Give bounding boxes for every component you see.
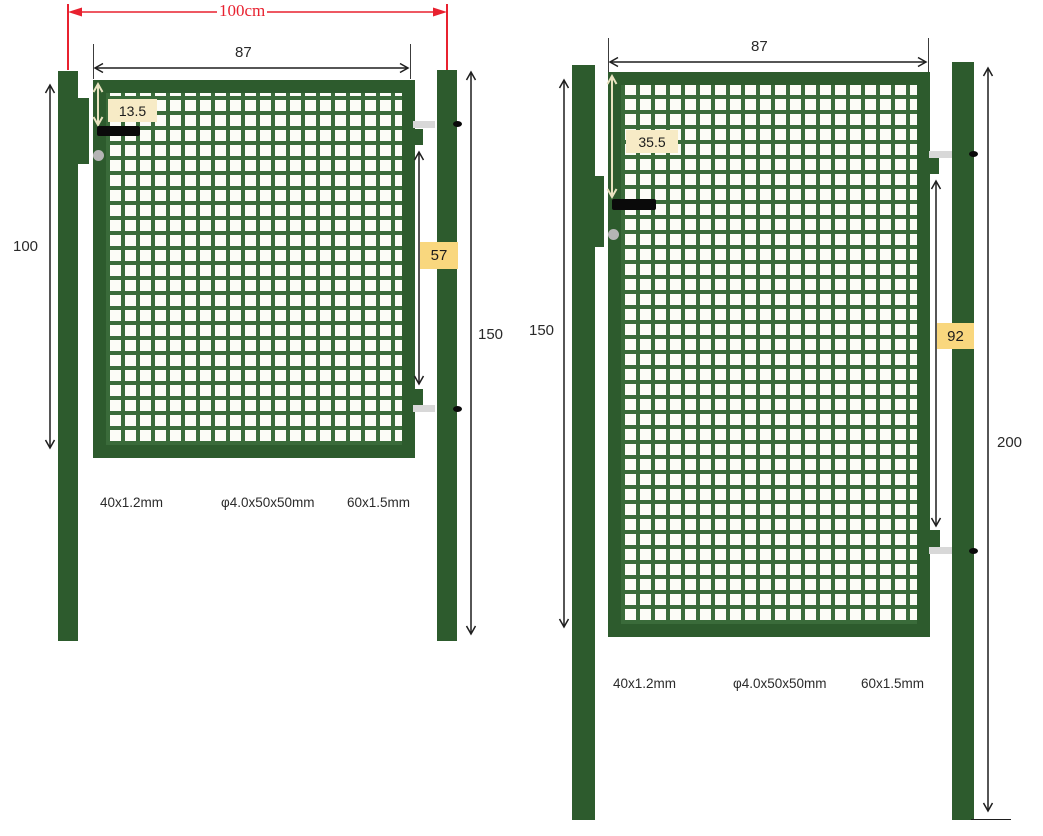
gate1-frame [93,80,415,458]
gate2-latch-plate [595,176,604,247]
gate2-spec-post: 60x1.5mm [861,676,924,691]
gate1-right-post [437,70,457,641]
gate1-overall-width-label: 100cm [217,2,267,21]
gate1-spec-post: 60x1.5mm [347,495,410,510]
gate2-frame-width-arrow [608,56,928,68]
gate1-hinge-spacing-label: 57 [431,247,448,264]
gate1-bottom-hinge-bar [413,405,435,412]
gate2-frame-width-label: 87 [751,38,768,55]
gate1-handle-offset-tag: 13.5 [108,99,157,122]
gate2-right-post [952,62,974,820]
gate2-frame [608,72,930,637]
gate1-gate-height-arrow [44,83,56,450]
gate1-bottom-hinge-bolt [453,406,462,412]
gate2-hinge-spacing-arrow [930,179,942,528]
gate1-frame-width-arrow [93,62,410,74]
gate2-gate-height-arrow [558,78,570,629]
gate1-wire-mesh [106,93,402,445]
gate2-bottom-hinge-bolt [969,548,978,554]
gate2-post-height-label: 200 [997,434,1022,451]
gate1-top-hinge-tab [412,129,423,145]
gate2-bottom-hinge-bar [929,547,952,554]
gate2-top-hinge-bolt [969,151,978,157]
gate2-spec-frame: 40x1.2mm [613,676,676,691]
gate2-left-post [572,65,595,820]
gate1-top-hinge-bolt [453,121,462,127]
gate1-spec-frame: 40x1.2mm [100,495,163,510]
gate1-left-post [58,71,78,641]
gate1-handle-offset-arrow [92,82,104,127]
gate2-hinge-spacing-label: 92 [947,328,964,345]
gate2-spec-mesh: φ4.0x50x50mm [733,676,827,691]
gate1-handle-offset-label: 13.5 [119,103,146,119]
gate2-handle-offset-arrow [606,74,618,199]
gate2-top-hinge-bar [929,151,952,158]
gate2-87-extension-right [928,38,929,73]
gate1-lock-cylinder [93,150,104,161]
gate1-post-height-label: 150 [478,326,503,343]
gate2-top-hinge-tab [928,158,939,174]
gate2-bottom-hinge-tab [928,530,940,547]
gate2-wire-mesh [621,85,917,624]
gate1-frame-width-label: 87 [235,44,252,61]
gate2-handle [612,199,656,210]
gate1-hinge-spacing-tag: 57 [420,242,458,269]
gate1-top-hinge-bar [413,121,435,128]
gate1-spec-mesh: φ4.0x50x50mm [221,495,315,510]
gate1-post-height-arrow [465,70,477,636]
gate2-gate-height-label: 150 [529,322,554,339]
gate2-hinge-spacing-tag: 92 [937,323,974,349]
gate2-post-height-arrow [982,66,994,813]
gate1-latch-plate [78,98,89,164]
gate-technical-diagram: 100cm 87 13.5 57 [0,0,1043,836]
gate1-gate-height-label: 100 [13,238,38,255]
gate1-87-extension-right [410,44,411,79]
gate2-post-height-base-tick [971,819,1011,820]
gate2-handle-offset-tag: 35.5 [626,130,678,153]
gate2-handle-offset-label: 35.5 [638,134,665,150]
gate2-lock-cylinder [608,229,619,240]
gate1-bottom-hinge-tab [412,389,423,405]
gate1-handle [97,126,140,136]
